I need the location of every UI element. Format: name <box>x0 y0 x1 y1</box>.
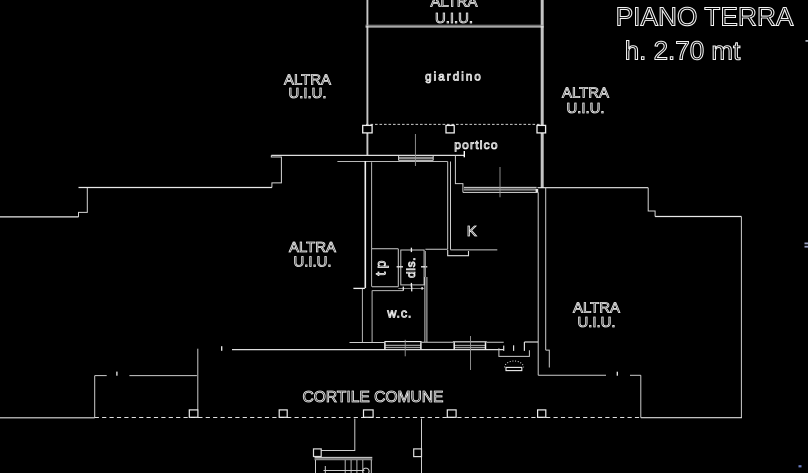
svg-text:w.c.: w.c. <box>386 307 412 321</box>
svg-text:U.I.U.: U.I.U. <box>566 101 604 117</box>
svg-text:ALTRA: ALTRA <box>562 86 609 102</box>
svg-text:giardino: giardino <box>425 72 483 84</box>
svg-text:dis.: dis. <box>404 257 418 278</box>
svg-text:h. 2.70 mt: h. 2.70 mt <box>625 36 741 66</box>
svg-text:ALTRA: ALTRA <box>431 0 478 11</box>
svg-text:portico: portico <box>454 138 498 152</box>
svg-text:U.I.U.: U.I.U. <box>293 255 331 271</box>
svg-text:K: K <box>467 223 477 240</box>
svg-text:CORTILE COMUNE: CORTILE COMUNE <box>303 389 444 406</box>
svg-text:U.I.U.: U.I.U. <box>288 86 326 102</box>
svg-text:tp: tp <box>372 257 388 276</box>
svg-text:PIANO TERRA: PIANO TERRA <box>616 2 794 32</box>
svg-text:U.I.U.: U.I.U. <box>577 315 615 331</box>
